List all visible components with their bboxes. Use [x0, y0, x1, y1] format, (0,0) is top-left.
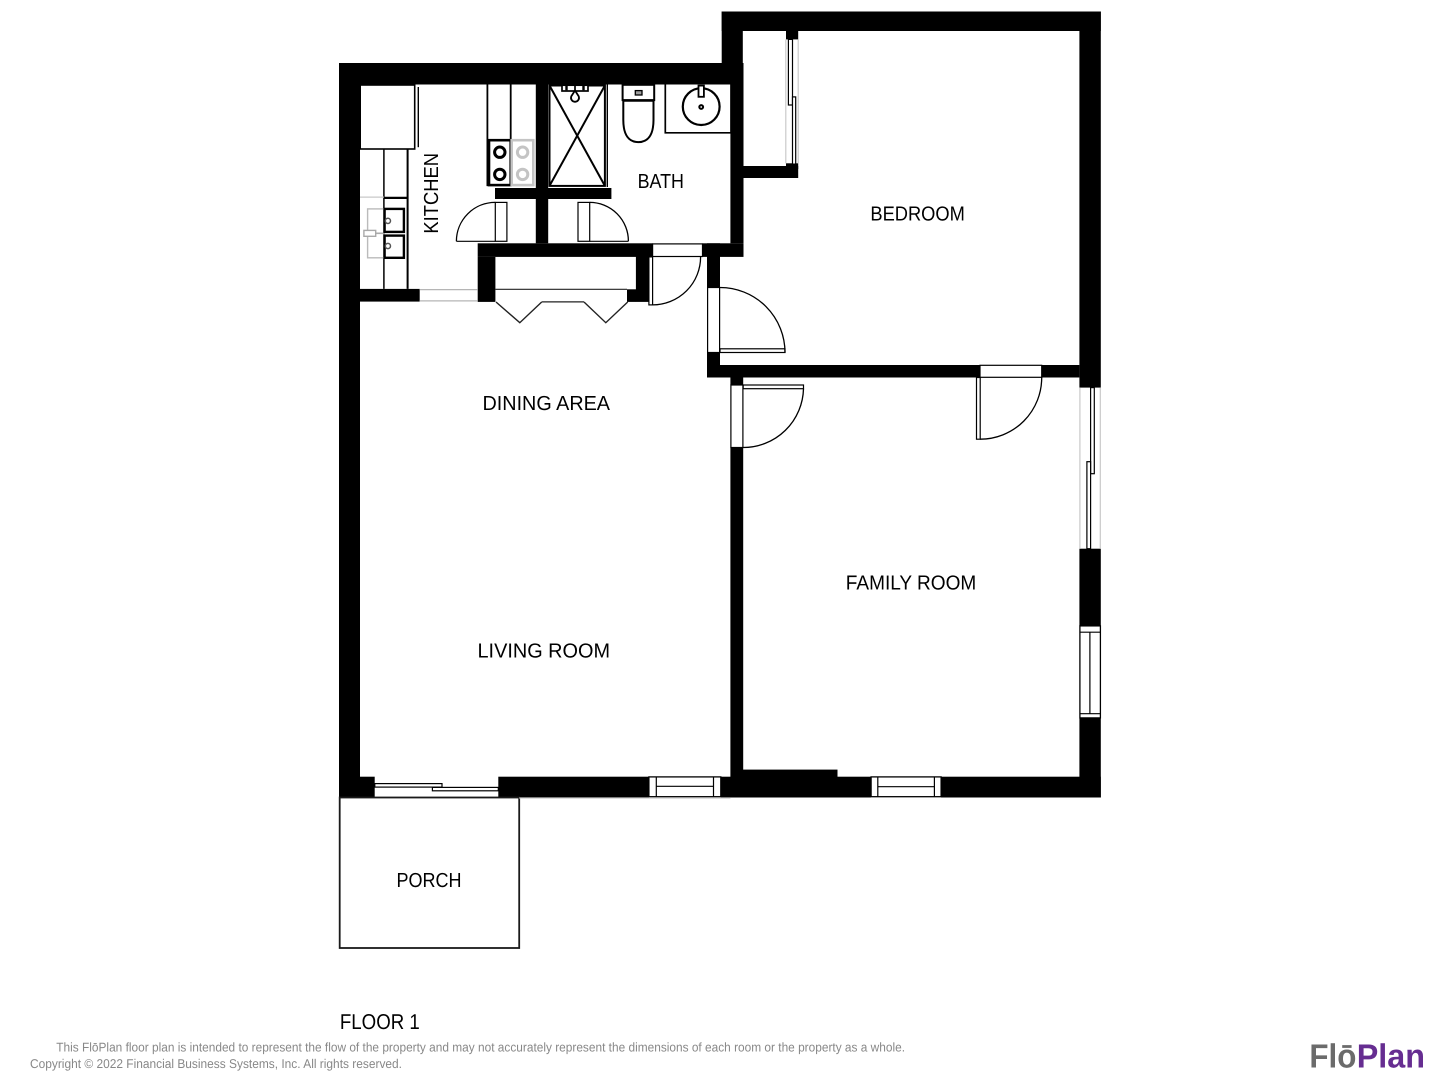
svg-text:LIVING ROOM: LIVING ROOM	[478, 641, 611, 663]
svg-text:Plan: Plan	[1357, 1039, 1425, 1076]
svg-text:This FlōPlan floor plan is int: This FlōPlan floor plan is intended to r…	[56, 1041, 905, 1055]
svg-text:BEDROOM: BEDROOM	[870, 203, 964, 225]
svg-text:KITCHEN: KITCHEN	[421, 153, 443, 234]
svg-text:BATH: BATH	[638, 171, 684, 193]
svg-text:FLOOR 1: FLOOR 1	[340, 1010, 420, 1034]
svg-text:FAMILY ROOM: FAMILY ROOM	[846, 572, 977, 594]
svg-text:PORCH: PORCH	[397, 870, 462, 892]
svg-text:Copyright © 2022 Financial Bus: Copyright © 2022 Financial Business Syst…	[30, 1057, 402, 1071]
svg-text:DINING AREA: DINING AREA	[483, 393, 611, 415]
svg-text:Flō: Flō	[1309, 1039, 1356, 1076]
